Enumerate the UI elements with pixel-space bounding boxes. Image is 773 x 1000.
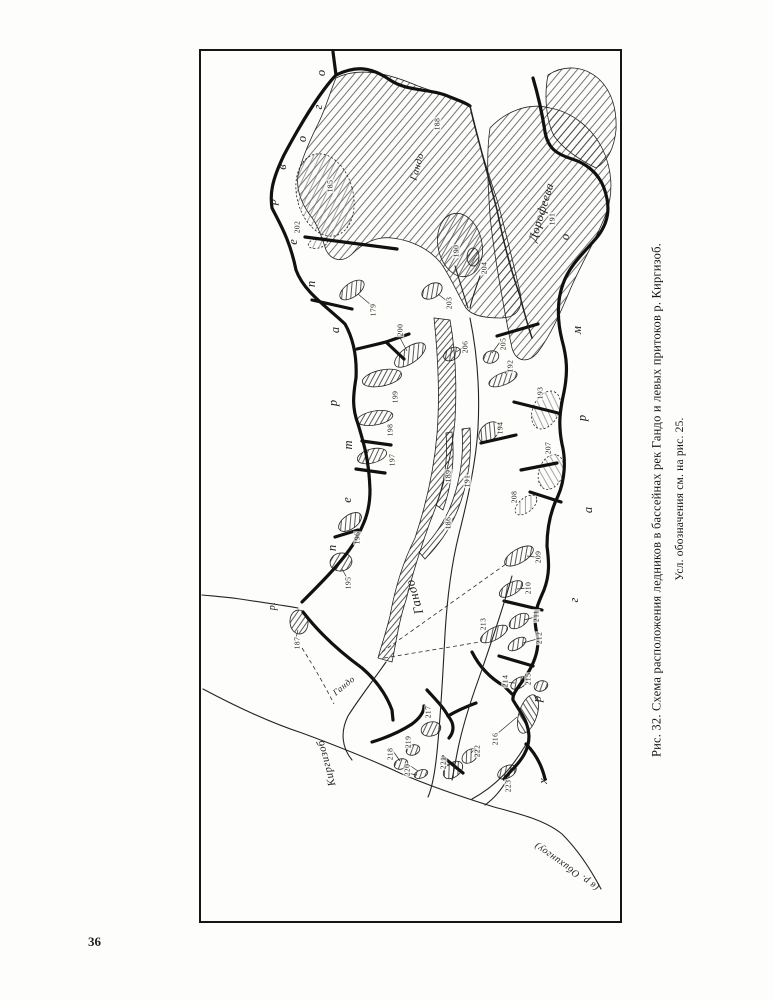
glacier-number: 222	[473, 744, 481, 758]
glacier-number: 194	[496, 421, 504, 435]
glacier-number: 211	[532, 609, 540, 623]
glacier-number: 198	[386, 423, 394, 437]
ridge-letter-petra-pervogo: е	[287, 239, 300, 245]
page-number: 36	[88, 934, 101, 950]
ridge-letter-garmo: г	[568, 598, 581, 603]
ridge-letter-petra-pervogo: р	[327, 400, 340, 406]
map-label-glacier-gando-upper: Гандо	[409, 152, 426, 182]
ridge-letter-garmo: м	[571, 326, 584, 334]
glacier-number: 219	[404, 735, 412, 749]
map-label-river-obikhingou: (в р. Обихингоу)	[533, 840, 601, 892]
ridge-letter-petra-pervogo: а	[329, 327, 342, 333]
glacier-number: 221	[439, 756, 447, 770]
glacier-number: 190	[452, 244, 460, 258]
ridge-letter-petra-pervogo: р	[266, 199, 279, 205]
glacier-number: 208	[510, 490, 518, 504]
ridge-letter-petra-pervogo: п	[305, 281, 318, 287]
glacier-number: 218	[386, 747, 394, 761]
glacier-number: 199	[391, 390, 399, 404]
glacier-number: 204	[480, 261, 488, 275]
ridge-letter-garmo: х	[537, 778, 550, 784]
glacier-number: 215	[524, 672, 532, 686]
glacier-number: 179	[369, 303, 377, 317]
map-label-river-gando: Гандо	[331, 675, 356, 698]
glacier-number: 189	[444, 469, 452, 483]
figure-caption-line-1: Рис. 32. Схема расположения ледников в б…	[650, 243, 665, 757]
glacier-number: 191	[548, 212, 556, 226]
glacier-number: 203	[445, 296, 453, 310]
ridge-letter-petra-pervogo: т	[342, 440, 355, 449]
glacier-number: 196	[353, 531, 361, 545]
glacier-number: 207	[544, 441, 552, 455]
ridge-letter-petra-pervogo: г	[312, 105, 325, 110]
ridge-letter-petra-pervogo: е	[341, 497, 354, 503]
glacier-number: 217	[424, 705, 432, 719]
ridge-letter-petra-pervogo: о	[296, 136, 309, 142]
scanned-page: 1791851861871881891901911911921931941951…	[0, 0, 773, 1000]
ridge-letter-petra-pervogo: п	[326, 545, 339, 551]
glacier-number: 197	[388, 453, 396, 467]
glacier-number: 223	[504, 779, 512, 793]
glacier-number: 205	[499, 337, 507, 351]
glacier-number: 213	[479, 617, 487, 631]
ridge-letter-garmo: р	[531, 696, 544, 702]
figure-caption-line-2: Усл. обозначения см. на рис. 25.	[674, 417, 686, 580]
glacier-number: 186	[444, 516, 452, 530]
ridge-letter-petra-pervogo: о	[315, 70, 328, 76]
glacier-number: 212	[535, 631, 543, 645]
glacier-number: 192	[506, 359, 514, 373]
glacier-number: 216	[491, 732, 499, 746]
ridge-letter-garmo: о	[559, 234, 572, 240]
glacier-number: 185	[326, 179, 334, 193]
glacier-number: 214	[501, 674, 509, 688]
map-label-glacier-gando-tongue: Гандо	[403, 578, 425, 616]
map-label-river-kirgizob: Киргизоб	[316, 739, 339, 787]
glacier-number: 220	[403, 763, 411, 777]
ridge-letter-garmo: а	[582, 507, 595, 513]
glacier-number: 206	[461, 340, 469, 354]
map-label-river-left-exit: р.	[268, 602, 278, 611]
glacier-number: 191	[463, 474, 471, 488]
glacier-number: 200	[396, 323, 404, 337]
glacier-number: 187	[293, 636, 301, 650]
glacier-number: 193	[536, 386, 544, 400]
ridge-letter-petra-pervogo: в	[276, 164, 289, 169]
glacier-number: 209	[534, 550, 542, 564]
ridge-letter-garmo: р	[576, 415, 589, 421]
glacier-number: 195	[344, 576, 352, 590]
glacier-number: 210	[524, 581, 532, 595]
glacier-number: 202	[293, 220, 301, 234]
glacier-number: 188	[433, 117, 441, 131]
